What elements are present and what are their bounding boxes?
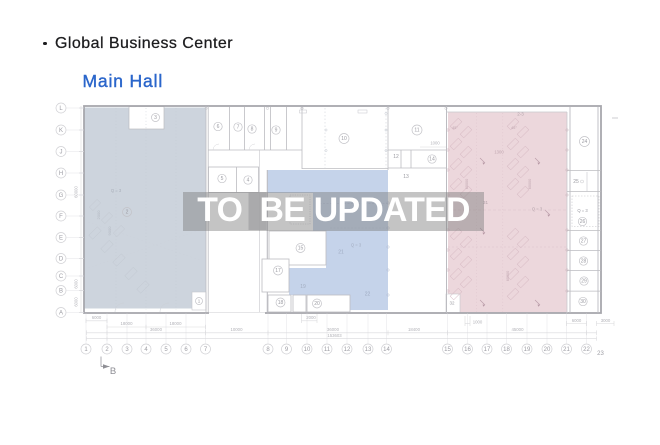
- svg-text:D: D: [59, 257, 64, 263]
- svg-text:9: 9: [275, 128, 278, 134]
- svg-text:36000: 36000: [327, 327, 340, 332]
- svg-text:18: 18: [503, 347, 510, 353]
- svg-text:8: 8: [266, 347, 270, 353]
- svg-text:G: G: [59, 193, 64, 199]
- svg-text:6000: 6000: [92, 315, 102, 320]
- svg-text:6000: 6000: [74, 297, 79, 307]
- svg-text:17: 17: [484, 347, 491, 353]
- svg-text:B: B: [110, 366, 116, 377]
- svg-text:21: 21: [338, 250, 344, 256]
- svg-text:6000: 6000: [74, 279, 79, 289]
- svg-text:153603: 153603: [327, 333, 342, 338]
- svg-text:6: 6: [184, 347, 188, 353]
- svg-text:Q = 3: Q = 3: [351, 243, 362, 248]
- svg-text:11: 11: [414, 128, 419, 134]
- svg-text:15: 15: [298, 246, 304, 252]
- svg-text:27: 27: [581, 239, 587, 245]
- svg-text:2000: 2000: [96, 210, 101, 220]
- svg-text:9000: 9000: [107, 226, 112, 236]
- svg-text:9: 9: [285, 347, 289, 353]
- svg-text:20: 20: [314, 301, 320, 307]
- svg-text:26: 26: [580, 219, 586, 225]
- svg-text:5: 5: [221, 176, 224, 182]
- svg-text:25: 25: [573, 179, 579, 185]
- svg-text:A: A: [59, 311, 63, 317]
- svg-text:2000: 2000: [306, 315, 316, 320]
- svg-text:H: H: [59, 171, 63, 177]
- svg-text:F: F: [59, 214, 63, 220]
- svg-text:60000: 60000: [74, 186, 79, 198]
- svg-text:10: 10: [341, 136, 347, 142]
- svg-text:10: 10: [304, 347, 311, 353]
- svg-text:19: 19: [524, 347, 531, 353]
- svg-text:45°: 45°: [452, 126, 458, 130]
- svg-text:22: 22: [583, 347, 590, 353]
- svg-text:3: 3: [125, 347, 129, 353]
- svg-text:14: 14: [429, 157, 435, 163]
- svg-text:29: 29: [581, 279, 587, 285]
- svg-text:18000: 18000: [121, 321, 134, 326]
- svg-text:17: 17: [275, 268, 281, 274]
- svg-text:L: L: [59, 106, 63, 112]
- svg-text:19: 19: [300, 284, 306, 290]
- svg-text:1000: 1000: [430, 141, 440, 146]
- svg-text:C: C: [59, 274, 64, 280]
- svg-text:24: 24: [582, 139, 588, 145]
- svg-text:45000: 45000: [512, 327, 525, 332]
- svg-text:4: 4: [247, 178, 250, 184]
- svg-text:15: 15: [444, 347, 451, 353]
- svg-text:6: 6: [217, 124, 220, 130]
- svg-text:3000: 3000: [601, 318, 611, 323]
- svg-text:3: 3: [154, 115, 157, 121]
- svg-text:13: 13: [403, 174, 409, 180]
- svg-text:18000: 18000: [170, 321, 183, 326]
- svg-text:5: 5: [164, 347, 168, 353]
- svg-text:21: 21: [563, 347, 570, 353]
- svg-text:7: 7: [237, 125, 240, 131]
- svg-text:12: 12: [393, 154, 399, 160]
- svg-text:20: 20: [544, 347, 551, 353]
- svg-text:16: 16: [464, 347, 471, 353]
- svg-text:E: E: [59, 236, 63, 242]
- svg-text:2: 2: [126, 210, 129, 216]
- svg-text:7: 7: [204, 347, 208, 353]
- svg-text:1300: 1300: [494, 150, 504, 155]
- svg-text:45°: 45°: [511, 126, 517, 130]
- svg-text:32: 32: [449, 301, 455, 306]
- svg-text:Q = 3: Q = 3: [532, 207, 543, 212]
- svg-text:K: K: [59, 128, 63, 134]
- svg-text:18: 18: [278, 300, 284, 306]
- svg-text:60000: 60000: [528, 179, 532, 190]
- svg-text:36000: 36000: [150, 327, 163, 332]
- svg-text:6000: 6000: [572, 318, 582, 323]
- svg-text:60000: 60000: [465, 179, 469, 190]
- svg-text:60000: 60000: [506, 271, 510, 282]
- svg-text:10000: 10000: [231, 327, 244, 332]
- svg-text:Q = 3: Q = 3: [577, 208, 588, 213]
- svg-text:13: 13: [365, 347, 372, 353]
- svg-text:2: 2: [105, 347, 109, 353]
- svg-text:22: 22: [365, 292, 371, 298]
- svg-text:18400: 18400: [408, 327, 421, 332]
- svg-text:B: B: [59, 289, 63, 295]
- svg-text:1: 1: [84, 347, 88, 353]
- svg-text:28: 28: [581, 259, 587, 265]
- svg-text:Q = 3: Q = 3: [111, 188, 122, 193]
- svg-text:14: 14: [383, 347, 390, 353]
- svg-text:1000: 1000: [473, 320, 483, 325]
- svg-text:8: 8: [251, 127, 254, 133]
- svg-text:J: J: [60, 150, 63, 156]
- svg-text:11: 11: [324, 347, 331, 353]
- svg-text:23: 23: [597, 351, 604, 357]
- svg-text:4: 4: [144, 347, 148, 353]
- svg-text:2-3: 2-3: [517, 112, 524, 117]
- svg-text:12: 12: [344, 347, 351, 353]
- svg-text:30: 30: [580, 299, 586, 305]
